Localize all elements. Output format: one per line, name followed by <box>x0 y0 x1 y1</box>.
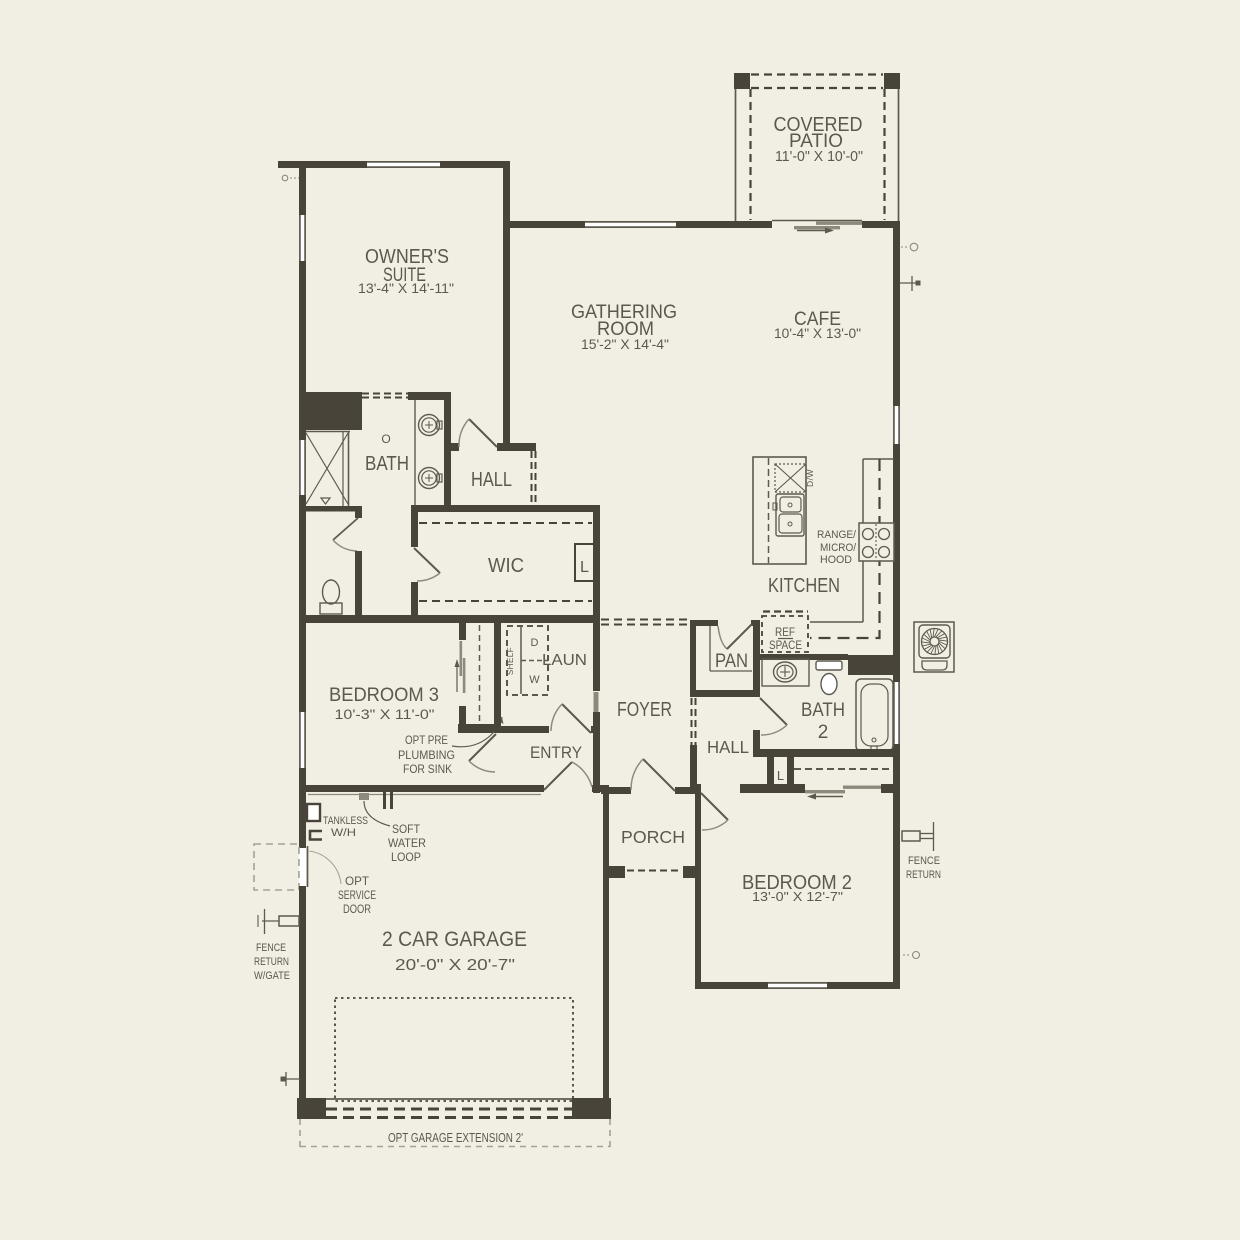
svg-text:PAN: PAN <box>715 651 748 672</box>
svg-text:RANGE/: RANGE/ <box>817 529 857 541</box>
svg-text:BATH: BATH <box>365 453 409 475</box>
svg-text:HOOD: HOOD <box>820 554 852 566</box>
svg-text:OPT: OPT <box>345 874 370 888</box>
svg-text:13'-0" X 12'-7": 13'-0" X 12'-7" <box>752 889 843 904</box>
svg-text:REF: REF <box>775 627 795 639</box>
svg-text:D: D <box>531 637 539 649</box>
svg-text:KITCHEN: KITCHEN <box>768 575 840 597</box>
svg-text:10'-3" X 11'-0": 10'-3" X 11'-0" <box>335 706 435 722</box>
svg-text:ENTRY: ENTRY <box>530 744 582 762</box>
svg-text:O: O <box>381 432 390 446</box>
svg-text:OPT GARAGE EXTENSION 2': OPT GARAGE EXTENSION 2' <box>388 1130 523 1145</box>
svg-text:10'-4" X 13'-0": 10'-4" X 13'-0" <box>774 325 861 341</box>
svg-text:SERVICE: SERVICE <box>338 888 376 902</box>
svg-text:TANKLESS: TANKLESS <box>323 815 368 827</box>
svg-text:PORCH: PORCH <box>621 827 685 847</box>
svg-text:RETURN: RETURN <box>906 869 941 881</box>
svg-text:D/W: D/W <box>805 469 815 487</box>
svg-text:W/H: W/H <box>331 827 356 839</box>
svg-text:SOFT: SOFT <box>392 822 421 836</box>
svg-text:FOYER: FOYER <box>617 699 672 721</box>
svg-text:PLUMBING: PLUMBING <box>398 750 455 762</box>
svg-text:FENCE: FENCE <box>256 942 286 954</box>
svg-text:SHELF: SHELF <box>506 647 515 675</box>
svg-text:MICRO/: MICRO/ <box>820 542 857 554</box>
svg-text:13'-4" X 14'-11": 13'-4" X 14'-11" <box>358 280 454 296</box>
svg-text:2 CAR GARAGE: 2 CAR GARAGE <box>382 927 527 951</box>
svg-text:L: L <box>777 768 784 783</box>
svg-text:DOOR: DOOR <box>343 902 371 916</box>
svg-text:OPT PRE: OPT PRE <box>405 735 448 747</box>
svg-text:L: L <box>580 559 589 576</box>
svg-text:15'-2" X 14'-4": 15'-2" X 14'-4" <box>581 336 669 352</box>
svg-text:W/GATE: W/GATE <box>254 970 290 982</box>
svg-text:WATER: WATER <box>388 836 426 850</box>
svg-text:RETURN: RETURN <box>254 956 289 968</box>
svg-text:WIC: WIC <box>488 555 524 577</box>
svg-text:11'-0" X 10'-0": 11'-0" X 10'-0" <box>775 148 863 165</box>
svg-text:BEDROOM 3: BEDROOM 3 <box>329 685 439 706</box>
svg-text:20'-0" X 20'-7": 20'-0" X 20'-7" <box>395 957 515 974</box>
svg-text:SPACE: SPACE <box>769 640 802 652</box>
svg-text:HALL: HALL <box>471 469 512 491</box>
svg-text:LAUN: LAUN <box>542 652 587 669</box>
svg-text:2: 2 <box>818 722 829 743</box>
svg-text:FOR SINK: FOR SINK <box>403 764 452 776</box>
svg-text:BATH: BATH <box>801 700 845 721</box>
svg-text:HALL: HALL <box>707 737 749 757</box>
svg-text:W: W <box>529 674 540 686</box>
svg-text:FENCE: FENCE <box>908 855 940 867</box>
svg-text:LOOP: LOOP <box>391 850 421 864</box>
